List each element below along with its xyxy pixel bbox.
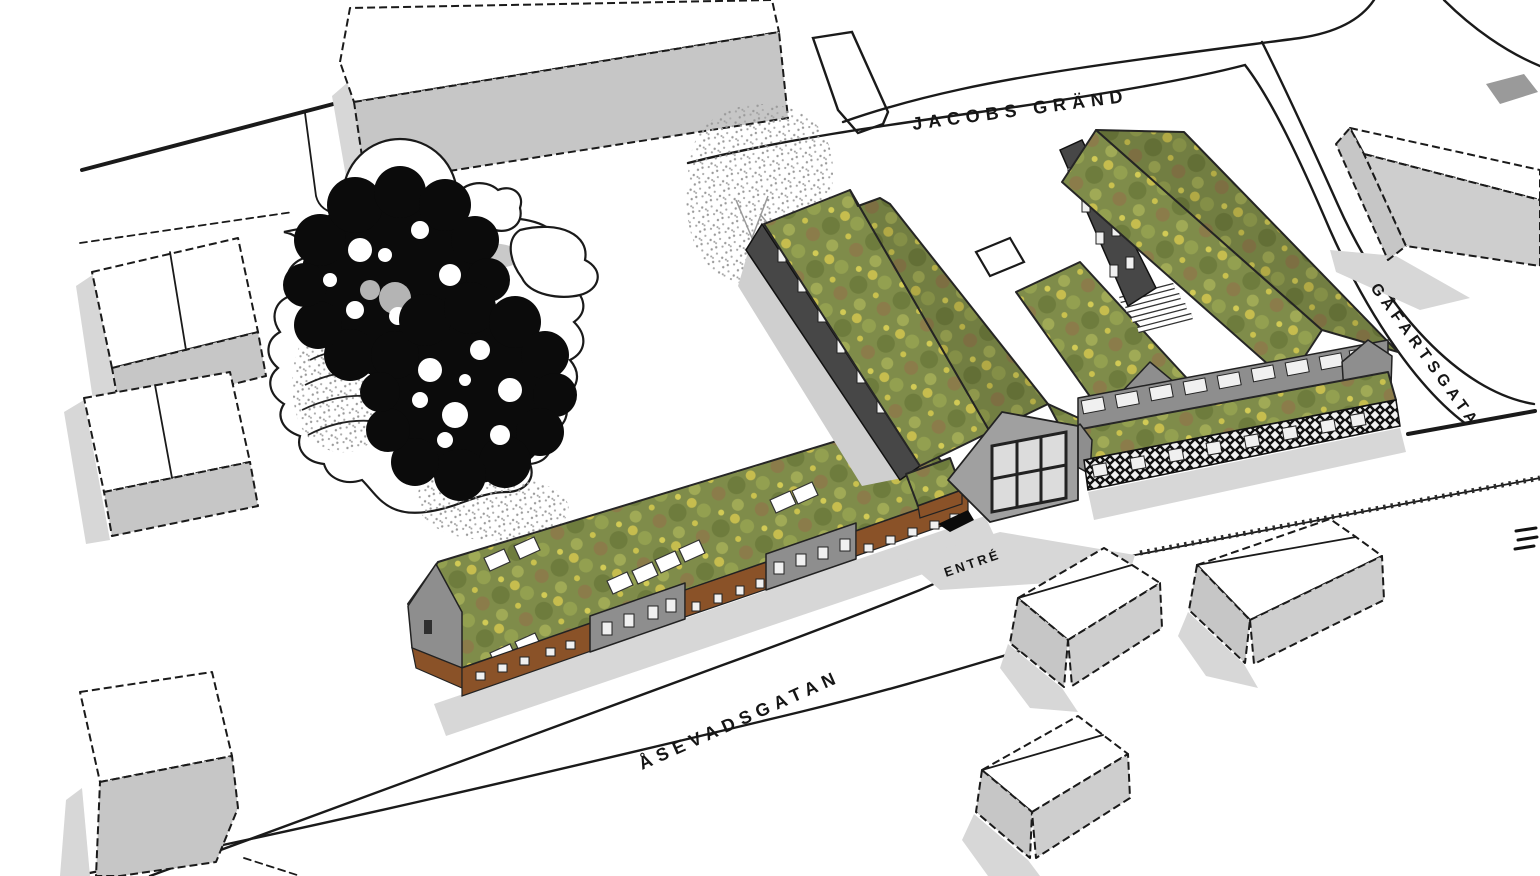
context-house-west-2 [84,372,258,536]
context-house-southwest [80,672,300,876]
site-plan-canvas: JACOBS GRÄND GÅFARTSGATA ÅSEVADSGATAN EN… [0,0,1540,876]
road-crossing-patch [1486,74,1538,104]
road-corner-top-right [1444,0,1540,66]
road-branch-north [813,32,888,133]
parcel-line-sw [244,858,300,876]
site-plan-rendering: JACOBS GRÄND GÅFARTSGATA ÅSEVADSGATAN EN… [0,0,1540,876]
road-edge-top-left-bold [82,97,360,170]
street-label-asevadsgatan: ÅSEVADSGATAN [635,666,843,773]
context-house-northeast [1336,128,1540,266]
edge-marks [1515,528,1537,549]
shadow-house-northeast [1330,250,1470,310]
shadow-house-southwest [60,788,90,876]
gable-window [424,620,432,634]
courtyard-gap [976,238,1024,276]
parcel-line-west-dashed [80,212,293,243]
